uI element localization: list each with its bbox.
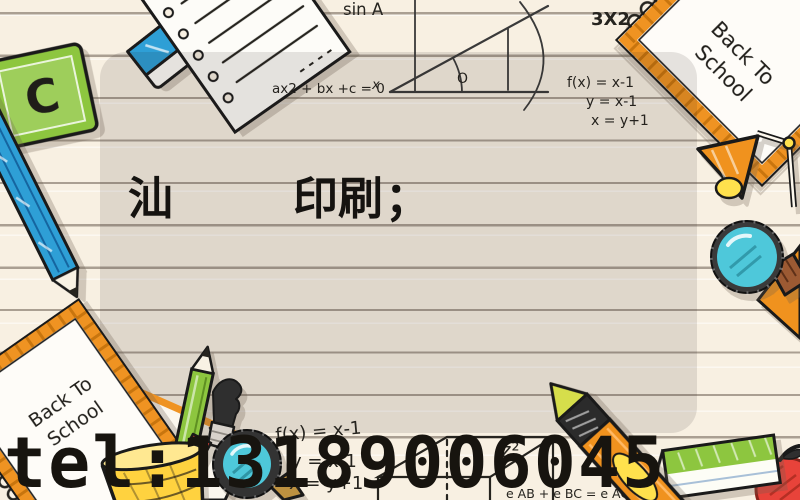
back-to-school-poster: C sin A x O ax2 + bx +c = 0 3X2 f(x) = x… <box>0 0 800 500</box>
phone-number: tel:13189006045 <box>4 428 666 498</box>
title-word-print: 印刷 <box>293 176 383 221</box>
magnifier-right-icon <box>711 221 800 295</box>
letter-card-icon: C <box>0 43 98 149</box>
title-char-1: 汕 <box>128 176 173 221</box>
formula-3x2: 3X2 <box>591 9 630 30</box>
formula-sin: sin A <box>343 0 384 19</box>
title-punctuation: ； <box>385 176 430 221</box>
